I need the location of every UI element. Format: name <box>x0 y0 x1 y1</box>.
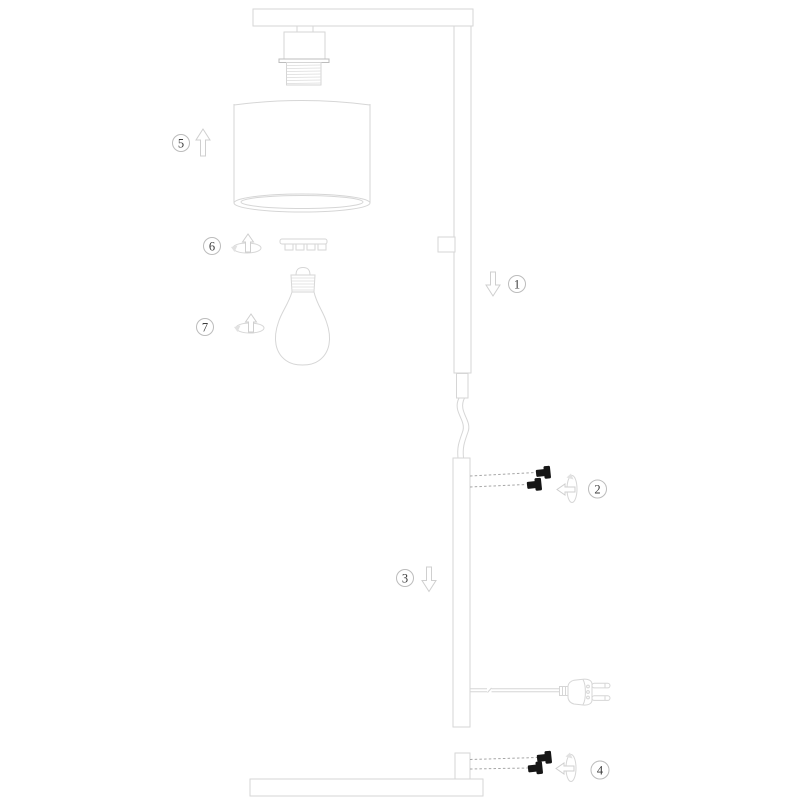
twist-left-icon <box>556 753 576 782</box>
lamp-socket <box>279 26 329 85</box>
arrow-down-icon <box>422 567 436 592</box>
callout-2: 2 <box>589 480 607 498</box>
upper-pole <box>454 26 471 373</box>
base-screws <box>470 751 552 776</box>
power-cord-and-plug <box>471 679 611 705</box>
screw-icon <box>535 466 551 480</box>
screw-icon <box>527 761 543 775</box>
power-plug-body <box>568 679 592 705</box>
twist-left-icon <box>557 474 577 503</box>
ring-tab <box>285 244 293 250</box>
socket-flange <box>279 59 329 63</box>
twist-up-icon <box>234 314 264 333</box>
bulb-cap-thread <box>291 275 315 292</box>
callout-number: 4 <box>597 764 604 778</box>
shade-retainer-ring <box>280 239 327 250</box>
cord-break-mark <box>488 688 492 693</box>
callout-number: 6 <box>209 240 215 254</box>
shade-bottom-rim-inner <box>241 196 363 209</box>
arrow-up-icon <box>196 129 210 156</box>
pole-connector-sleeve <box>457 374 469 399</box>
callout-number: 2 <box>594 483 600 497</box>
callout-5: 5 <box>173 135 190 152</box>
screw-icon <box>526 478 542 492</box>
screw-guide-line <box>470 768 528 769</box>
twist-up-icon <box>231 234 261 253</box>
ring-tab <box>318 244 326 250</box>
socket-body <box>284 32 325 59</box>
bulb-cap-top <box>296 268 310 276</box>
plug-pin <box>592 683 610 688</box>
callout-number: 7 <box>202 321 208 335</box>
lamp-frame <box>250 9 483 796</box>
bulb-glass <box>275 292 329 365</box>
shade-bottom-rim-outer <box>234 194 370 212</box>
base-plate <box>250 779 483 796</box>
callout-3: 3 <box>397 570 414 587</box>
callout-number: 1 <box>514 278 520 292</box>
assembly-instruction-page: 1 2 3 4 5 6 7 <box>0 0 800 800</box>
screw-guide-line <box>470 473 535 477</box>
arrow-down-icon <box>486 272 500 296</box>
top-arm <box>253 9 473 26</box>
pole-screws <box>470 466 551 492</box>
lower-pole <box>453 458 470 727</box>
callout-1: 1 <box>509 276 526 293</box>
screw-guide-line <box>470 485 526 488</box>
lampshade <box>234 101 370 213</box>
screw-guide-line <box>470 758 537 760</box>
base-stub <box>455 753 470 779</box>
callout-6: 6 <box>204 238 221 255</box>
shade-top-rim <box>234 101 370 106</box>
socket-neck <box>297 26 313 32</box>
plug-pin <box>592 696 610 701</box>
switch-box <box>438 237 455 252</box>
callout-7: 7 <box>197 319 214 336</box>
floor-lamp-exploded-diagram: 1 2 3 4 5 6 7 <box>0 0 800 800</box>
ring-rim <box>280 239 327 244</box>
callout-number: 3 <box>402 572 408 586</box>
callout-4: 4 <box>591 761 609 779</box>
ring-tab <box>296 244 304 250</box>
light-bulb <box>275 268 329 366</box>
callout-number: 5 <box>178 137 184 151</box>
ring-tab <box>307 244 315 250</box>
cord-strain-relief <box>560 687 569 696</box>
